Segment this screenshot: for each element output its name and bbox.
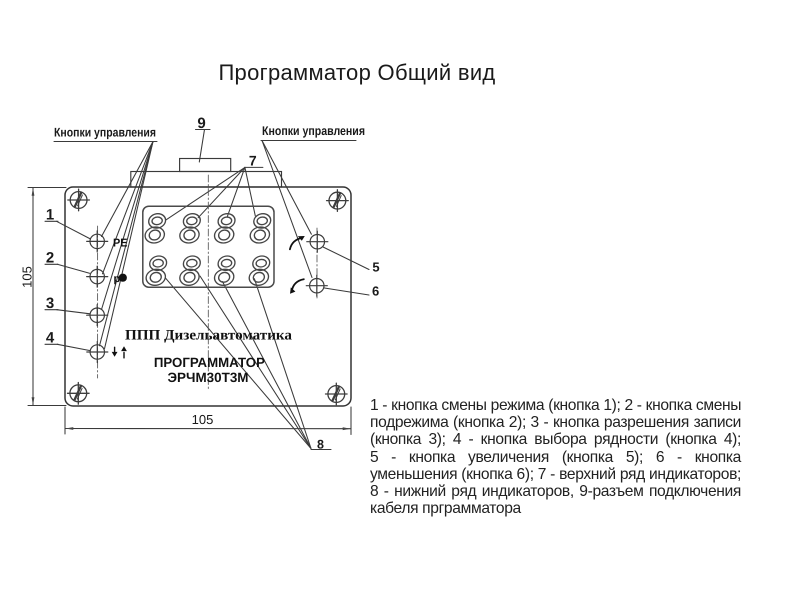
svg-text:ППП Дизельавтоматика: ППП Дизельавтоматика bbox=[125, 328, 293, 344]
svg-text:105: 105 bbox=[20, 266, 35, 288]
svg-text:РЕ: РЕ bbox=[113, 238, 128, 250]
svg-text:ПРОГРАММАТОР: ПРОГРАММАТОР bbox=[154, 355, 265, 370]
svg-text:ЭРЧМ30Т3М: ЭРЧМ30Т3М bbox=[168, 370, 249, 385]
svg-text:Кнопки управления: Кнопки управления bbox=[54, 125, 156, 139]
svg-text:Кнопки управления: Кнопки управления bbox=[262, 124, 365, 138]
svg-text:6: 6 bbox=[372, 283, 379, 298]
svg-text:5: 5 bbox=[372, 260, 379, 275]
svg-text:105: 105 bbox=[192, 412, 214, 427]
svg-text:7: 7 bbox=[249, 153, 257, 169]
